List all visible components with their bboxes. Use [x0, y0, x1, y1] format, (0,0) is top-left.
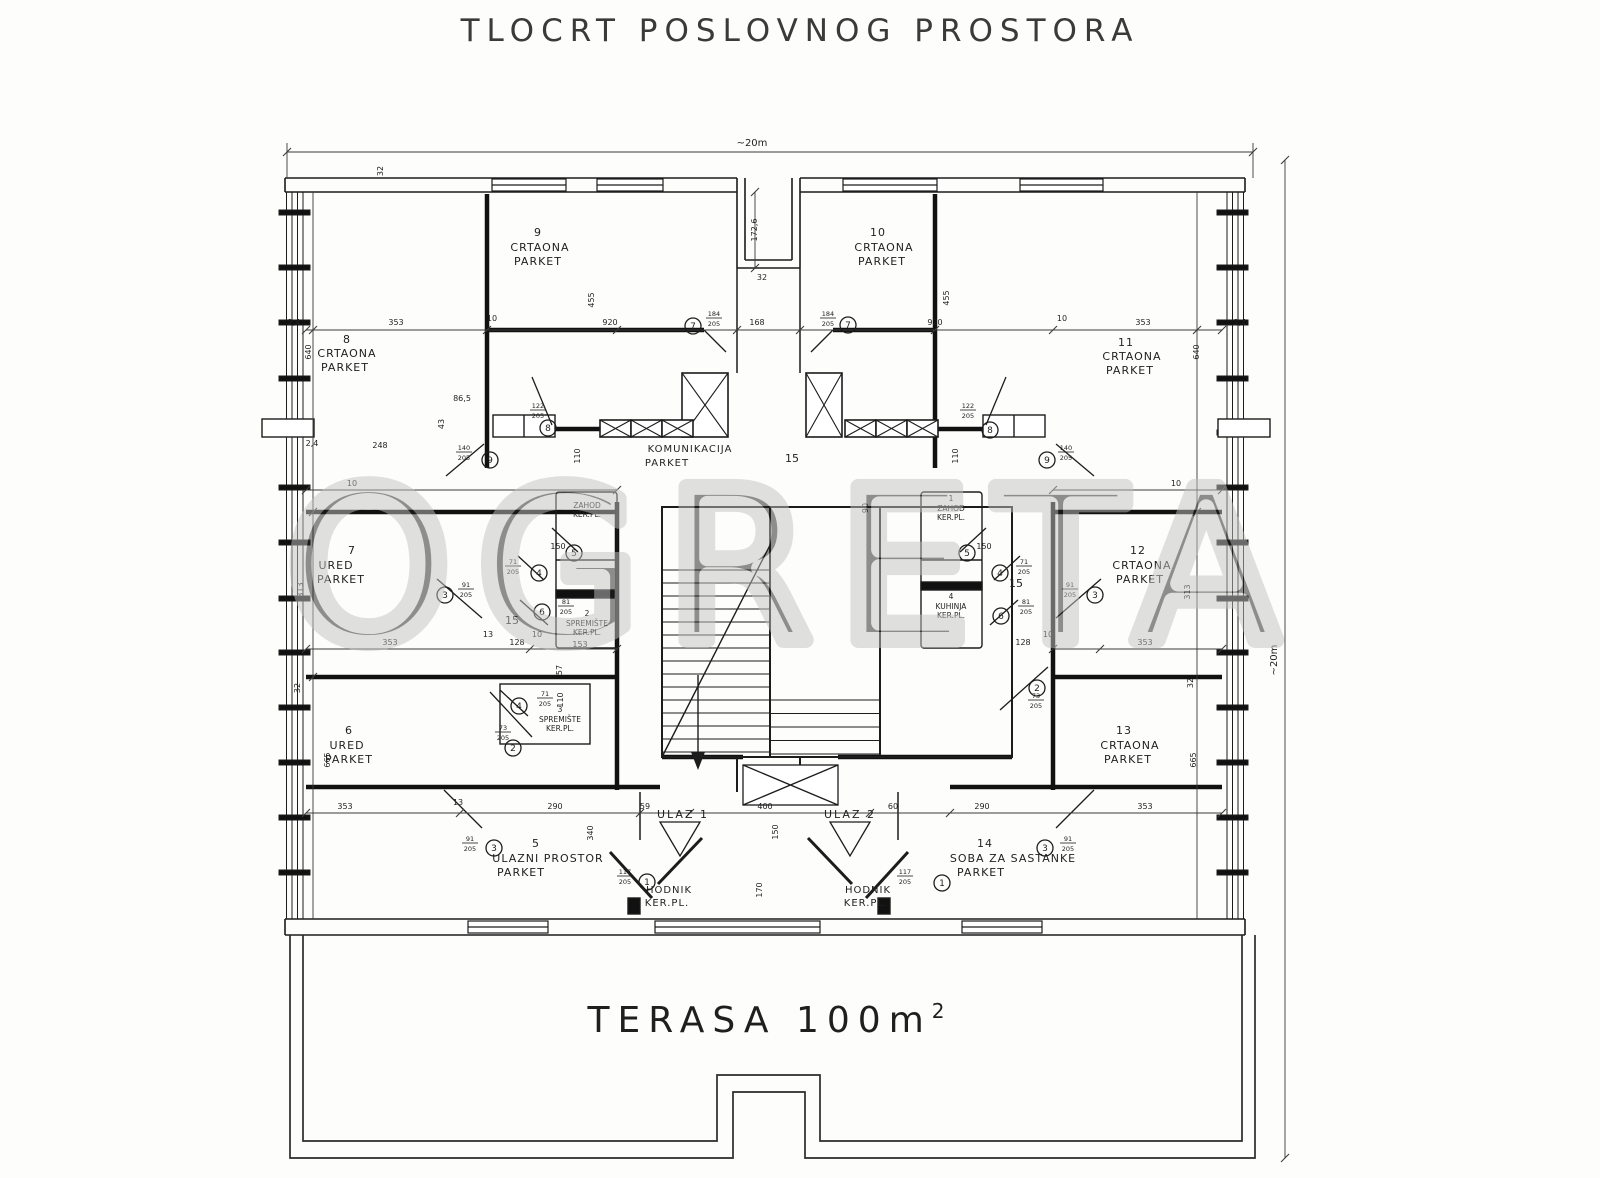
dimension-label: 665	[1189, 752, 1198, 767]
dimension-label: 400	[757, 802, 772, 811]
door-marker-number: 3	[1042, 844, 1048, 854]
door-marker-number: 1	[939, 879, 945, 889]
glazing-transom	[1217, 376, 1248, 381]
dimension-label: 353	[337, 802, 352, 811]
wall-stub	[628, 898, 640, 914]
dimension-label: 168	[749, 318, 764, 327]
door-marker-number: 8	[545, 424, 551, 434]
door-size-tag: 184	[822, 310, 834, 318]
floor-plan-drawing: 9CRTAONAPARKET10CRTAONAPARKET8CRTAONAPAR…	[0, 0, 1600, 1178]
room-label-soba-za-sastanke-14: SOBA ZA SASTANKE	[950, 852, 1076, 865]
dimension-label: 2,4	[288, 318, 301, 327]
dimension-label: 10	[487, 314, 497, 323]
room-label-crtaona-13: PARKET	[1104, 753, 1152, 766]
room-label-hodnik-right: HODNIK	[845, 885, 891, 896]
room-label-spremiste-3: KER.PL.	[546, 724, 574, 733]
dimension-label: 455	[587, 292, 596, 307]
dimension-label: 665	[323, 752, 332, 767]
door-size-tag: 71	[541, 690, 549, 698]
door-size-tag: 117	[619, 868, 631, 876]
dimension-label: 2,4	[1234, 318, 1247, 327]
door-size-tag: 205	[962, 412, 974, 420]
room-label-crtaona-11: PARKET	[1106, 364, 1154, 377]
glazing-transom	[1217, 210, 1248, 215]
door-size-tag: 205	[822, 320, 834, 328]
room-label-crtaona-10: 10	[870, 226, 886, 239]
dimension-label: 640	[1192, 344, 1201, 359]
stair-direction-arrow	[691, 752, 705, 770]
glazing-transom	[279, 705, 310, 710]
room-label-crtaona-13: CRTAONA	[1100, 739, 1159, 752]
glazing-transom	[279, 870, 310, 875]
door-size-tag: 205	[708, 320, 720, 328]
terrace-label: TERASA 100m2	[586, 999, 952, 1041]
dimension-label: 13	[453, 798, 463, 807]
dimension-label: 353	[388, 318, 403, 327]
door-size-tag: 205	[1062, 845, 1074, 853]
dimension-label: 920	[602, 318, 617, 327]
terrace-area-superscript: 2	[932, 999, 953, 1023]
door-size-tag: 205	[464, 845, 476, 853]
door-size-tag: 122	[532, 402, 544, 410]
glazing-transom	[1217, 760, 1248, 765]
glazing-transom	[1217, 870, 1248, 875]
dimension-label: 32	[376, 166, 385, 176]
glazing-transom	[279, 210, 310, 215]
dimension-label: 43	[437, 419, 446, 429]
door-marker-number: 7	[690, 322, 696, 332]
dimension-label: 32	[757, 273, 767, 282]
glazing-transom	[279, 815, 310, 820]
door-size-tag: 91	[1064, 835, 1072, 843]
door-size-tag: 73	[1032, 692, 1040, 700]
door-size-tag: 184	[708, 310, 720, 318]
door-size-tag: 205	[899, 878, 911, 886]
room-label-crtaona-9: CRTAONA	[510, 241, 569, 254]
dimension-label: 110	[556, 692, 565, 707]
dimension-label: 340	[586, 825, 595, 840]
door-marker-number: 8	[987, 426, 993, 436]
room-label-ured-6: 6	[345, 724, 353, 737]
room-label-crtaona-11: CRTAONA	[1102, 350, 1161, 363]
dimension-label: 920	[927, 318, 942, 327]
dimension-label: 640	[304, 344, 313, 359]
dimension-label: 353	[1137, 802, 1152, 811]
room-label-ulaz-1: ULAZ 1	[657, 808, 709, 821]
shafts-and-hatch-strips	[600, 373, 938, 437]
entrance-double-door	[743, 765, 838, 805]
room-label-crtaona-8: 8	[343, 333, 351, 346]
room-label-hodnik-left: KER.PL.	[645, 898, 689, 909]
door-marker-number: 2	[510, 744, 516, 754]
door-size-tag: 205	[619, 878, 631, 886]
room-label-crtaona-8: CRTAONA	[317, 347, 376, 360]
door-size-tag: 117	[899, 868, 911, 876]
room-label-hodnik-right: KER.PL.	[844, 898, 888, 909]
room-label-ulazni-prostor-5: 5	[532, 837, 540, 850]
room-label-crtaona-13: 13	[1116, 724, 1132, 737]
door-size-tag: 205	[532, 412, 544, 420]
door-marker-number: 7	[845, 321, 851, 331]
room-label-crtaona-9: 9	[534, 226, 542, 239]
room-label-crtaona-9: PARKET	[514, 255, 562, 268]
dimension-label: 60	[888, 802, 898, 811]
dimension-label: ~20m	[737, 138, 768, 149]
dimension-label: 290	[547, 802, 562, 811]
dimension-label: 290	[974, 802, 989, 811]
door-size-tag: 205	[497, 734, 509, 742]
room-label-ured-6: PARKET	[325, 753, 373, 766]
glazing-transom	[279, 376, 310, 381]
dimension-label: 86,5	[453, 394, 471, 403]
door-size-tag: 205	[539, 700, 551, 708]
door-marker-number: 1	[644, 878, 650, 888]
room-label-ulazni-prostor-5: PARKET	[497, 866, 545, 879]
window-sill-boxes	[262, 419, 1270, 437]
dimension-label: 59	[640, 802, 650, 811]
dimension-label: 150	[771, 824, 780, 839]
dimension-label: 10	[1057, 314, 1067, 323]
dimension-label: 455	[942, 290, 951, 305]
glazing-transom	[1217, 705, 1248, 710]
glazing-transom	[279, 265, 310, 270]
room-label-crtaona-10: PARKET	[858, 255, 906, 268]
room-label-soba-za-sastanke-14: 14	[977, 837, 993, 850]
room-label-ulazni-prostor-5: ULAZNI PROSTOR	[492, 852, 603, 865]
door-size-tag: 73	[499, 724, 507, 732]
door-marker-number: 3	[491, 844, 497, 854]
room-label-ulaz-2: ULAZ 2	[824, 808, 876, 821]
room-label-soba-za-sastanke-14: PARKET	[957, 866, 1005, 879]
watermark-text: OGRETA	[286, 445, 1304, 690]
glazing-transom	[1217, 815, 1248, 820]
room-label-crtaona-10: CRTAONA	[854, 241, 913, 254]
terrace-outline	[290, 935, 1255, 1158]
door-size-tag: 91	[466, 835, 474, 843]
dimension-label: 172,6	[750, 219, 759, 242]
room-label-spremiste-3: SPREMIŠTE	[539, 715, 581, 724]
glazing-transom	[1217, 265, 1248, 270]
door-size-tag: 122	[962, 402, 974, 410]
dimension-label: 353	[1135, 318, 1150, 327]
glazing-transom	[279, 760, 310, 765]
room-label-crtaona-11: 11	[1118, 336, 1134, 349]
dimension-label: 170	[755, 882, 764, 897]
door-size-tag: 205	[1030, 702, 1042, 710]
door-marker-number: 4	[516, 702, 522, 712]
room-label-crtaona-8: PARKET	[321, 361, 369, 374]
floor-plan-page: TLOCRT POSLOVNOG PROSTORA	[0, 0, 1600, 1178]
room-label-ured-6: URED	[329, 739, 364, 752]
